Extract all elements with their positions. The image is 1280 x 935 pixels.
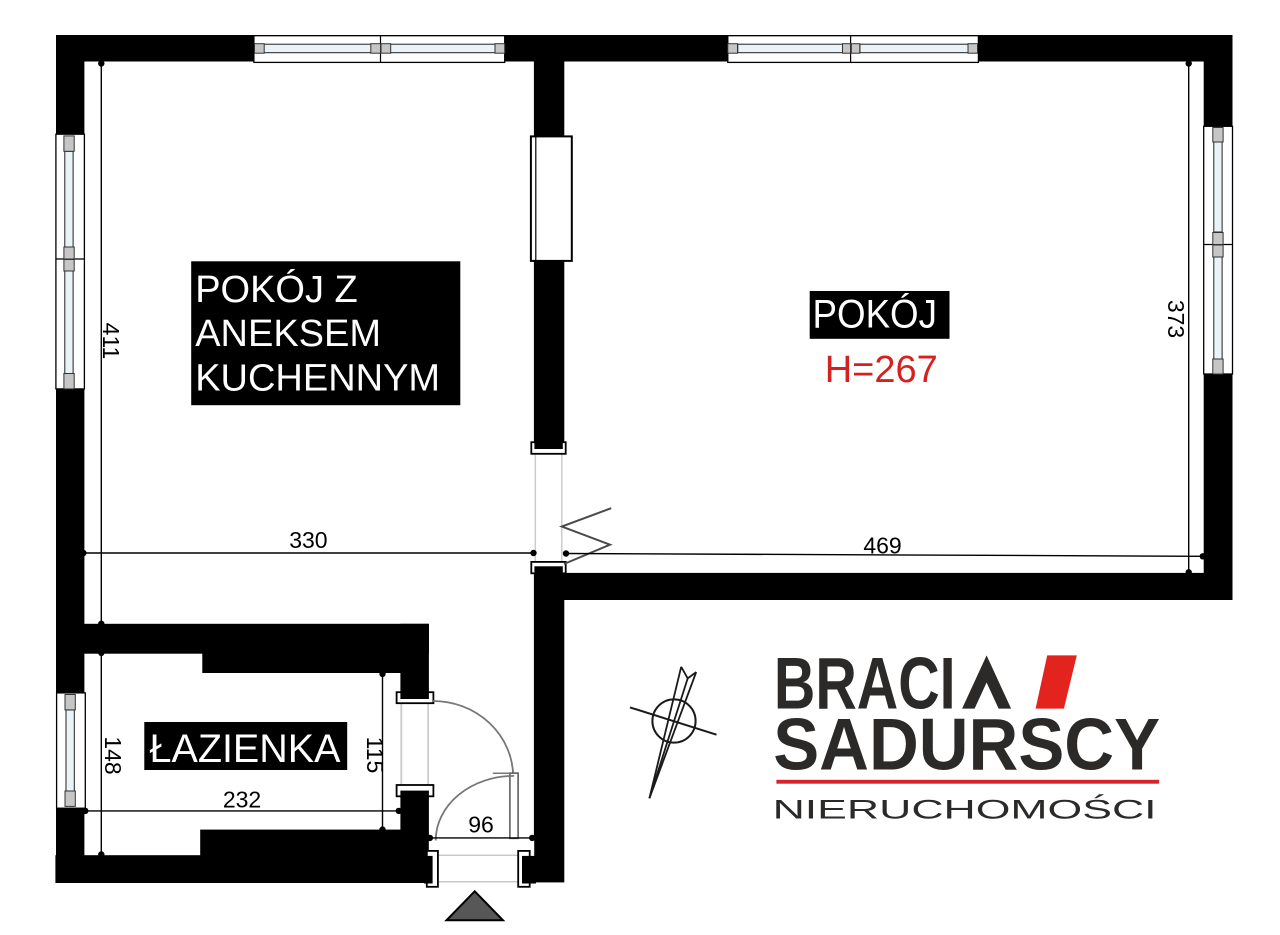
svg-text:SADURSCY: SADURSCY xyxy=(773,704,1160,785)
svg-text:96: 96 xyxy=(468,812,494,838)
svg-text:H=267: H=267 xyxy=(825,349,938,391)
svg-text:POKÓJ: POKÓJ xyxy=(813,292,938,337)
svg-text:373: 373 xyxy=(1163,300,1189,338)
svg-text:POKÓJ Z: POKÓJ Z xyxy=(195,268,358,311)
svg-text:NIERUCHOMOŚCI: NIERUCHOMOŚCI xyxy=(773,792,1157,824)
svg-text:ŁAZIENKA: ŁAZIENKA xyxy=(150,727,341,771)
svg-text:469: 469 xyxy=(863,533,901,559)
svg-text:ANEKSEM: ANEKSEM xyxy=(195,313,381,355)
svg-text:232: 232 xyxy=(223,787,261,813)
svg-text:330: 330 xyxy=(289,527,327,553)
svg-text:KUCHENNYM: KUCHENNYM xyxy=(195,358,440,400)
svg-text:411: 411 xyxy=(98,323,124,360)
svg-text:148: 148 xyxy=(100,736,126,774)
svg-text:115: 115 xyxy=(362,737,388,774)
